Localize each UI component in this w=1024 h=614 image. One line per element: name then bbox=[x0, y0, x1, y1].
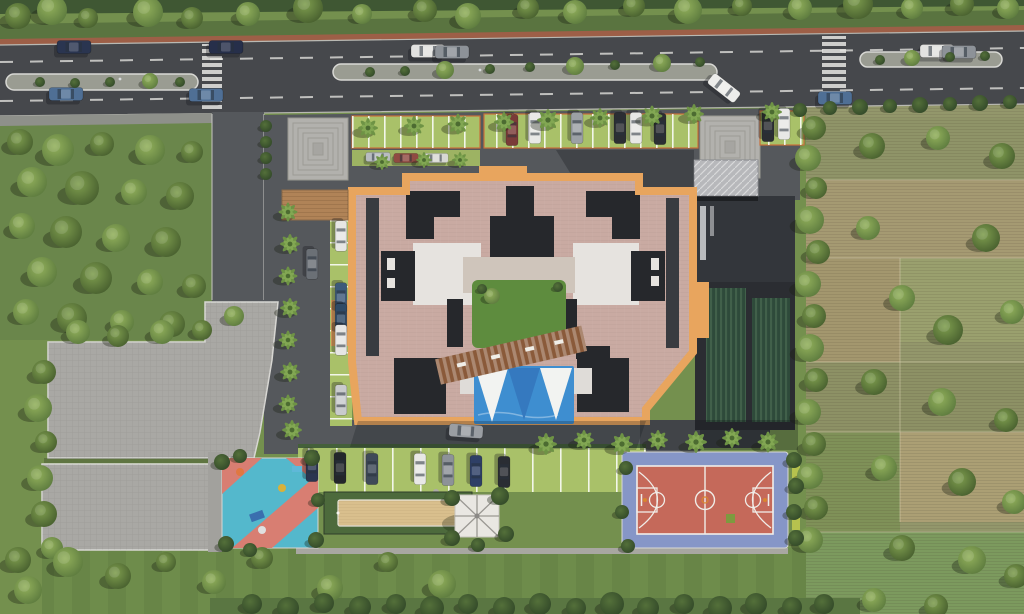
basketball-court bbox=[622, 452, 800, 548]
apartment-building-roof bbox=[331, 166, 709, 424]
car bbox=[362, 451, 378, 485]
hoop bbox=[643, 498, 647, 502]
play-equipment bbox=[278, 484, 286, 492]
car bbox=[494, 454, 510, 488]
car bbox=[438, 452, 454, 486]
farm-field bbox=[806, 96, 1024, 614]
car bbox=[330, 450, 346, 484]
car bbox=[432, 46, 469, 63]
east-entrance-canopy bbox=[694, 160, 758, 201]
car bbox=[186, 89, 223, 106]
site-plan-render bbox=[0, 0, 1024, 614]
planter-strip-west bbox=[366, 198, 379, 356]
garden-walkway bbox=[296, 548, 788, 554]
entrance-plaza-west bbox=[288, 118, 348, 180]
car bbox=[46, 88, 83, 105]
car bbox=[610, 110, 626, 144]
car bbox=[626, 110, 642, 144]
play-equipment bbox=[258, 526, 266, 534]
north-canopy bbox=[479, 166, 527, 178]
entry-drive-west bbox=[212, 112, 264, 304]
play-equipment bbox=[236, 468, 244, 476]
car bbox=[332, 382, 347, 415]
white-roof-block bbox=[573, 243, 639, 305]
car bbox=[466, 453, 482, 487]
planter-strip-east bbox=[666, 198, 679, 348]
car bbox=[332, 218, 347, 251]
car bbox=[410, 451, 426, 485]
car bbox=[445, 423, 483, 443]
car bbox=[567, 110, 583, 144]
car bbox=[303, 246, 318, 279]
car bbox=[206, 41, 243, 58]
main-road bbox=[0, 31, 1024, 116]
aerial-view bbox=[0, 0, 1024, 614]
utility-box bbox=[726, 514, 735, 523]
hoop bbox=[763, 498, 767, 502]
building-shadow bbox=[350, 421, 646, 450]
car bbox=[54, 41, 91, 58]
play-equipment bbox=[292, 466, 302, 472]
east-canopy-bump bbox=[691, 282, 709, 338]
car bbox=[332, 322, 347, 355]
